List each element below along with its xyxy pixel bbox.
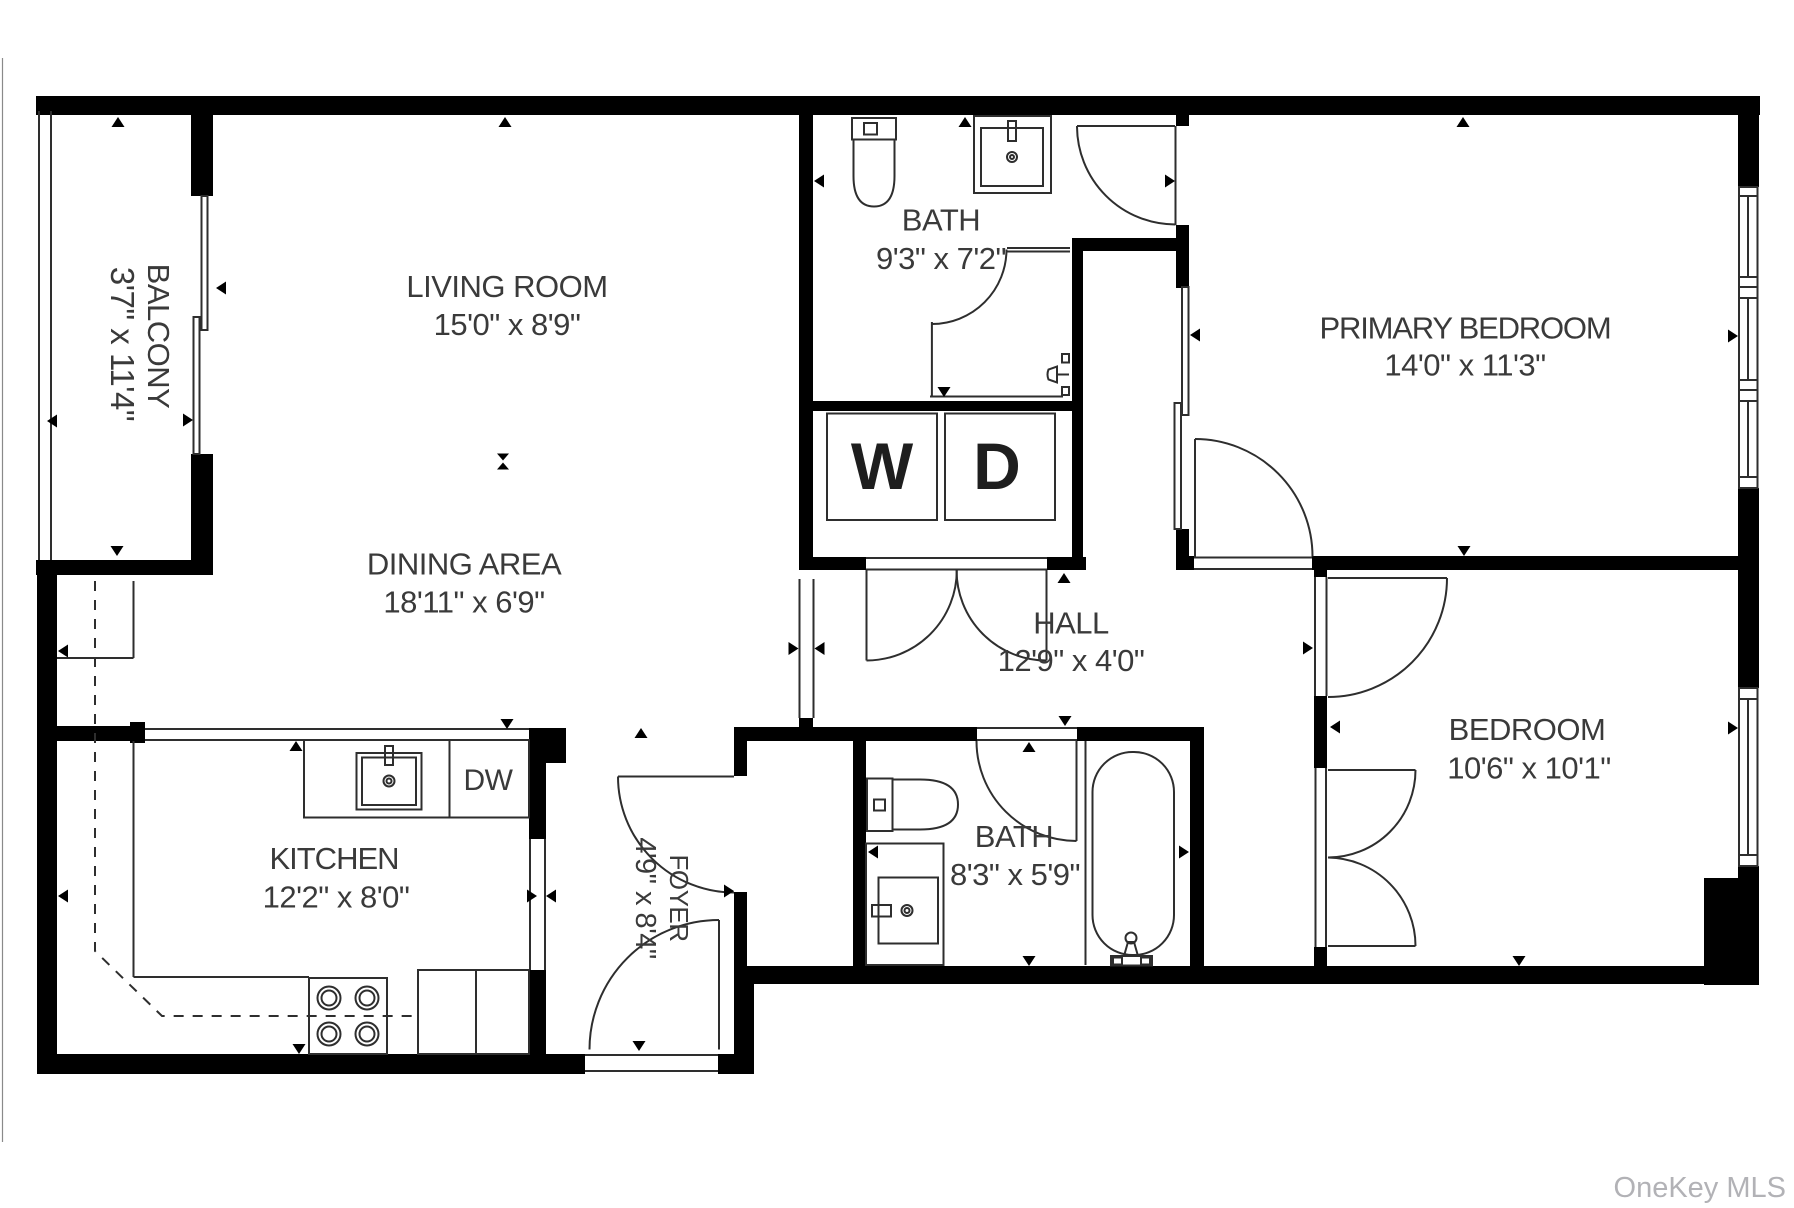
svg-text:FOYER: FOYER [664,854,694,941]
svg-text:BATH: BATH [975,819,1053,854]
svg-text:W: W [851,429,914,503]
svg-text:LIVING ROOM: LIVING ROOM [406,269,607,304]
svg-text:12'2" x 8'0": 12'2" x 8'0" [263,880,410,915]
svg-text:BALCONY: BALCONY [141,264,176,409]
svg-text:9'3" x 7'2": 9'3" x 7'2" [876,241,1006,276]
svg-text:18'11" x 6'9": 18'11" x 6'9" [383,585,544,620]
svg-text:4'9" x 8'4": 4'9" x 8'4" [629,837,661,958]
svg-text:15'0" x 8'9": 15'0" x 8'9" [434,307,581,342]
svg-text:3'7" x 11'4": 3'7" x 11'4" [104,267,141,421]
svg-text:10'6" x 10'1": 10'6" x 10'1" [1447,750,1611,785]
svg-text:BATH: BATH [902,203,980,238]
svg-text:OneKey MLS: OneKey MLS [1614,1172,1786,1204]
svg-text:HALL: HALL [1033,606,1109,641]
svg-text:D: D [973,429,1021,503]
svg-text:BEDROOM: BEDROOM [1449,712,1606,747]
svg-text:14'0" x 11'3": 14'0" x 11'3" [1384,348,1545,383]
svg-text:PRIMARY BEDROOM: PRIMARY BEDROOM [1320,311,1611,346]
svg-text:DW: DW [464,764,514,797]
svg-text:8'3" x 5'9": 8'3" x 5'9" [950,857,1080,892]
svg-text:12'9" x 4'0": 12'9" x 4'0" [998,643,1145,678]
svg-text:KITCHEN: KITCHEN [269,841,398,876]
svg-text:DINING AREA: DINING AREA [367,547,562,582]
